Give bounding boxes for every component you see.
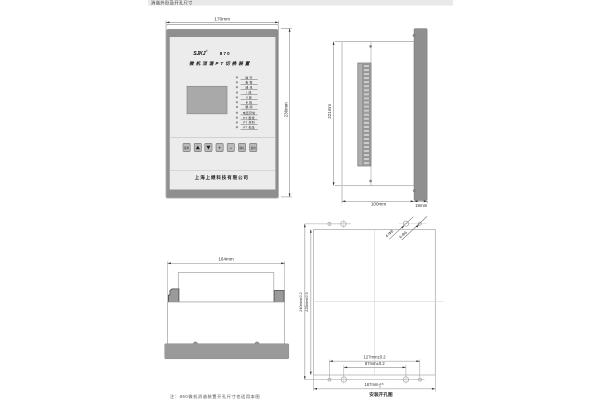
- svg-text:240mm±0.2: 240mm±0.2: [299, 292, 303, 311]
- svg-text:PT 并列: PT 并列: [243, 120, 254, 125]
- svg-text:确认: 确认: [239, 146, 245, 150]
- svg-text:Ⅱ 段: Ⅱ 段: [246, 95, 252, 100]
- svg-text:注：860微机消谐装置开孔尺寸也适用本图: 注：860微机消谐装置开孔尺寸也适用本图: [170, 393, 260, 400]
- svg-text:告 警: 告 警: [245, 80, 252, 85]
- svg-text:236mm: 236mm: [284, 102, 289, 117]
- svg-text:−: −: [230, 145, 233, 150]
- svg-text:复位: 复位: [251, 146, 257, 150]
- svg-text:PT 失压: PT 失压: [243, 124, 254, 129]
- svg-text:安装开孔图: 安装开孔图: [369, 391, 393, 398]
- svg-text:电压异常: 电压异常: [243, 110, 256, 115]
- svg-text:菜单: 菜单: [184, 146, 190, 150]
- svg-text:127mm±0.2: 127mm±0.2: [364, 355, 387, 360]
- svg-text:微机消谐PT切换装置: 微机消谐PT切换装置: [189, 61, 251, 66]
- svg-text:运 行: 运 行: [245, 75, 252, 80]
- svg-text:225mm±0.5: 225mm±0.5: [305, 292, 309, 311]
- svg-text:19mm: 19mm: [415, 203, 428, 208]
- svg-text:上海上继科技有限公司: 上海上继科技有限公司: [195, 174, 249, 181]
- svg-text:8 7 0: 8 7 0: [220, 51, 230, 56]
- svg-text:164mm: 164mm: [218, 257, 233, 262]
- svg-text:跳 闸: 跳 闸: [245, 104, 252, 109]
- svg-text:+: +: [218, 146, 221, 151]
- svg-text:通 讯: 通 讯: [245, 84, 252, 89]
- svg-text:221mm: 221mm: [327, 104, 332, 119]
- svg-text:PT 断线: PT 断线: [243, 115, 254, 120]
- svg-text:Ⅲ 段: Ⅲ 段: [246, 100, 252, 105]
- svg-text:87mm±0.2: 87mm±0.2: [365, 361, 385, 366]
- svg-text:Ⅰ 段: Ⅰ 段: [246, 90, 251, 95]
- svg-text:100mm: 100mm: [371, 202, 386, 207]
- svg-text:170mm: 170mm: [214, 16, 230, 21]
- svg-text:SJKJ: SJKJ: [193, 51, 205, 57]
